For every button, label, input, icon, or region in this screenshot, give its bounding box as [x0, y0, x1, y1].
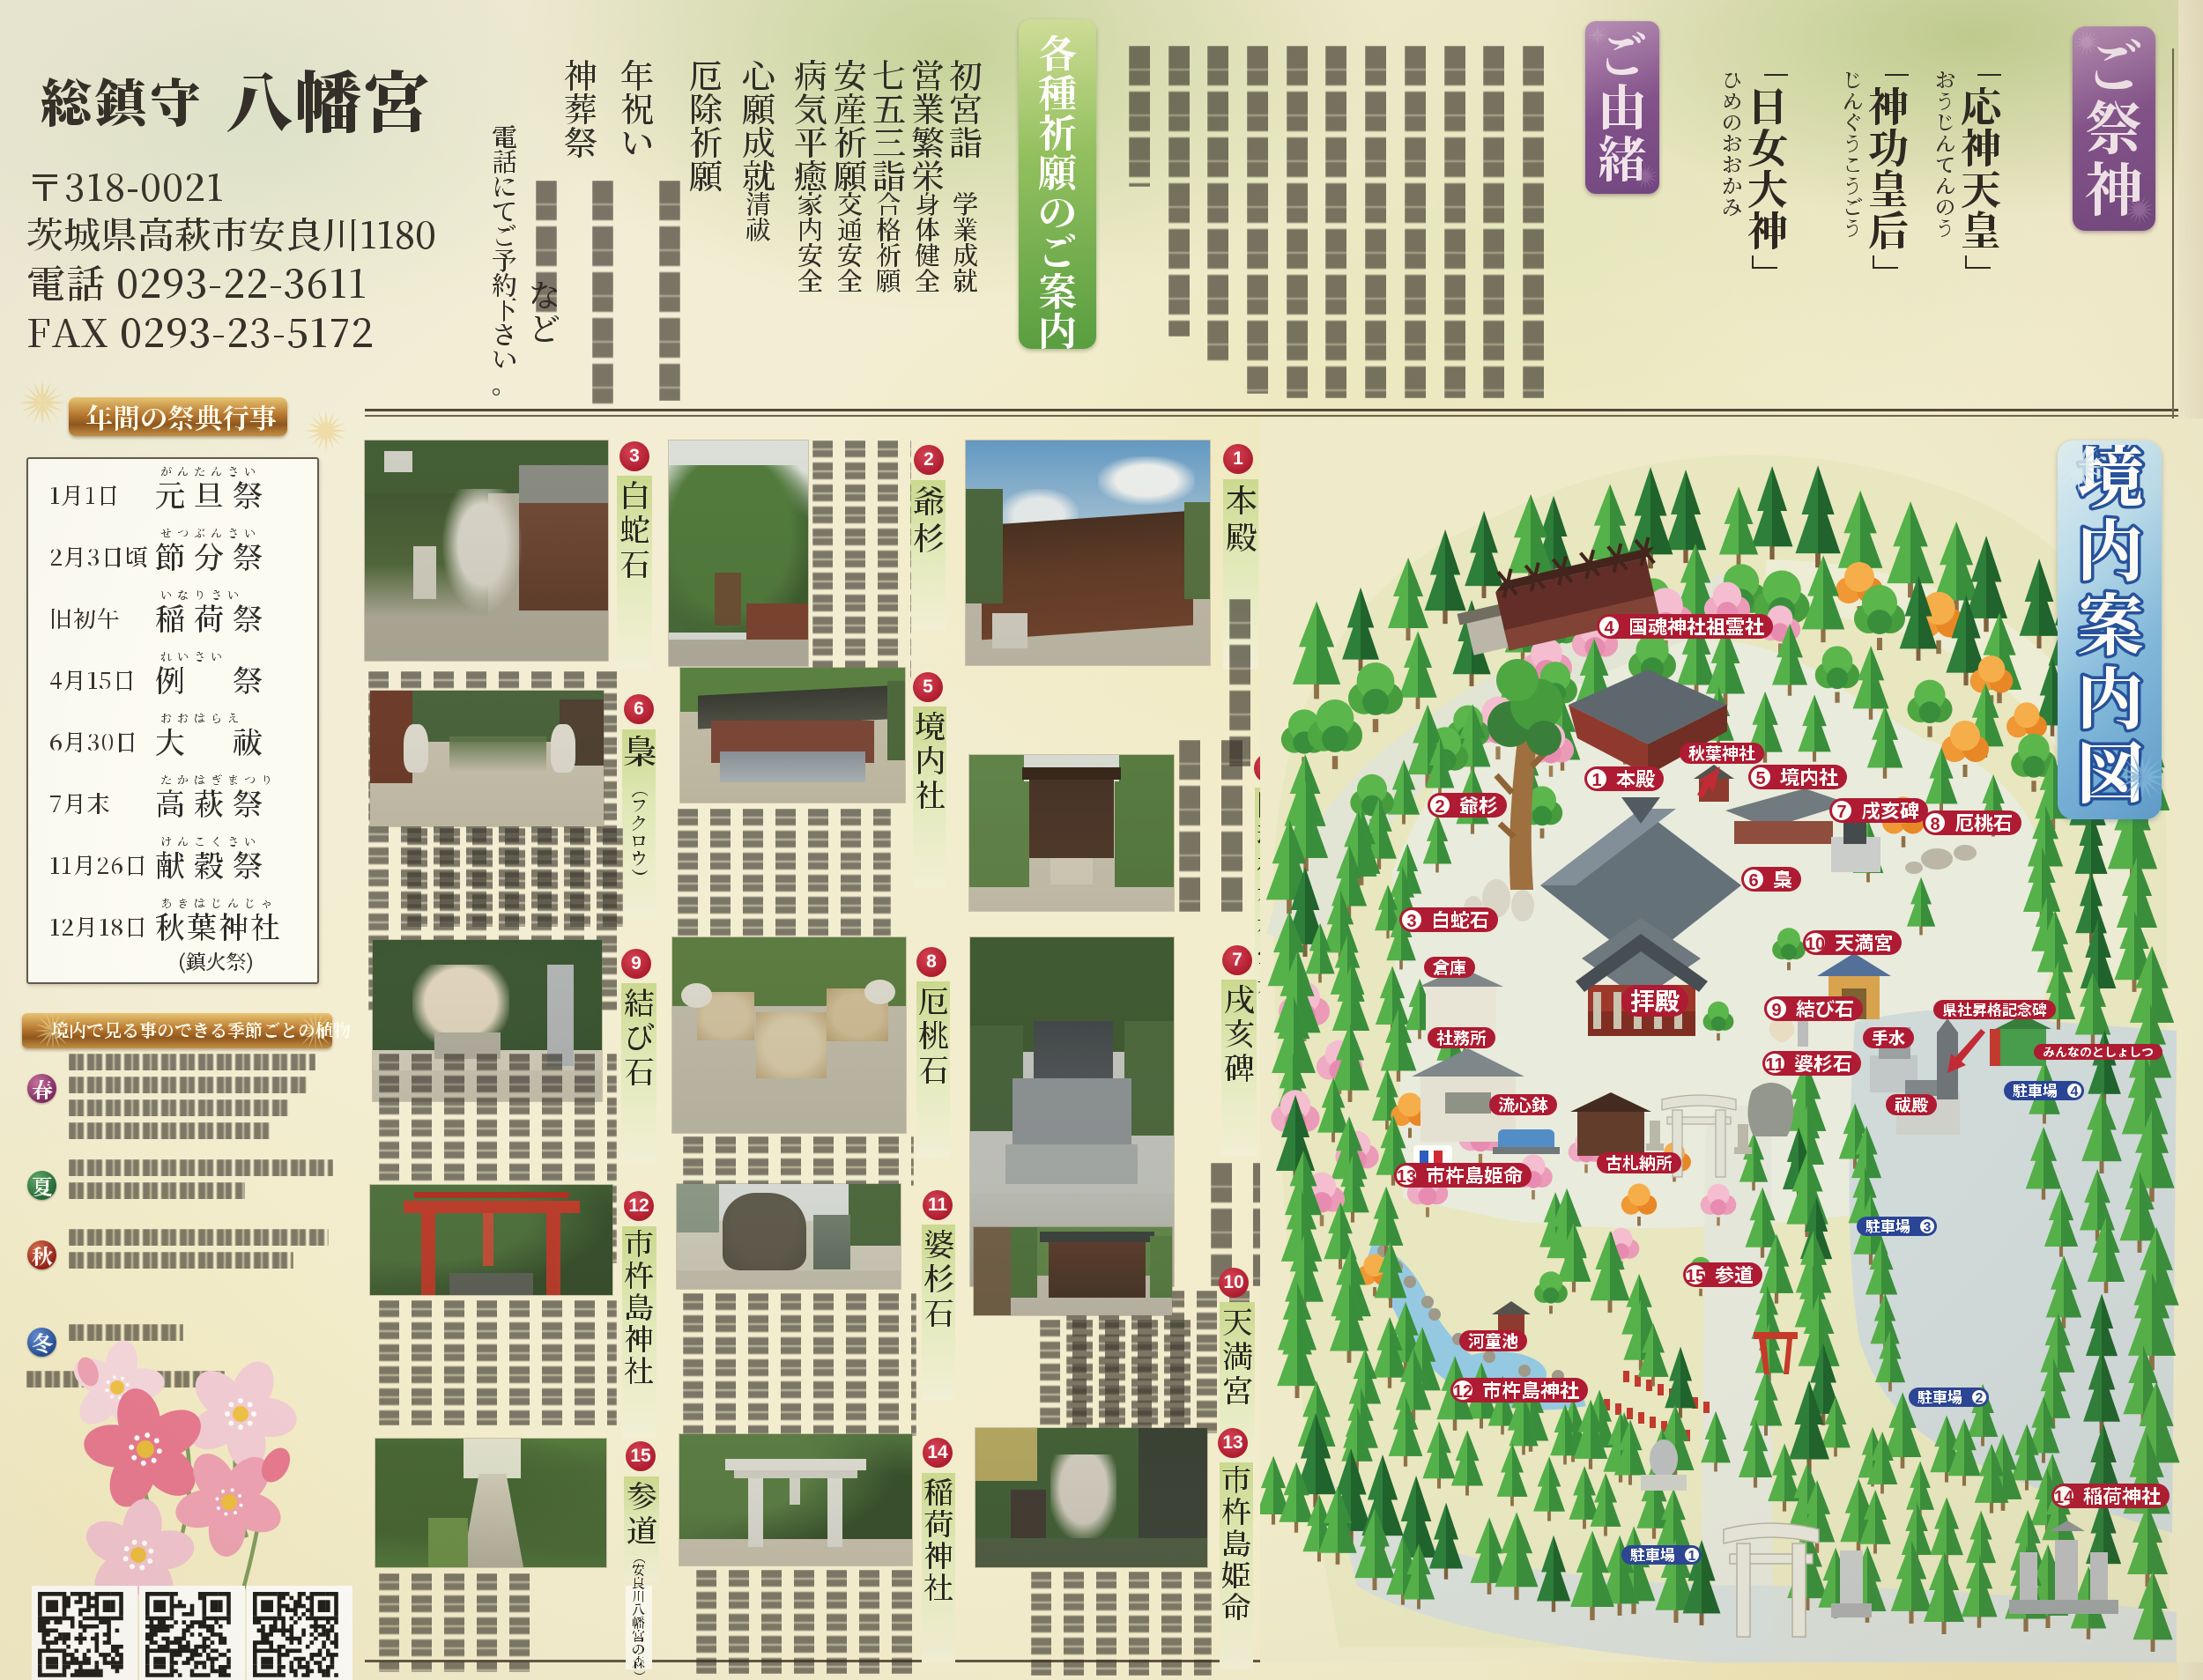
svg-text:1: 1	[1688, 1549, 1696, 1564]
svg-text:5: 5	[1755, 769, 1765, 788]
svg-text:15: 15	[1686, 1267, 1705, 1286]
svg-text:4: 4	[1604, 618, 1614, 638]
svg-text:8: 8	[1930, 815, 1940, 834]
svg-text:12: 12	[1453, 1382, 1472, 1402]
svg-text:13: 13	[1397, 1167, 1416, 1187]
svg-text:11: 11	[1765, 1055, 1784, 1075]
svg-text:14: 14	[2054, 1488, 2074, 1507]
svg-text:9: 9	[1771, 1001, 1781, 1020]
svg-text:2: 2	[1435, 797, 1444, 817]
svg-text:10: 10	[1806, 935, 1825, 954]
svg-text:3: 3	[1406, 912, 1416, 931]
svg-text:7: 7	[1836, 803, 1846, 822]
svg-text:4: 4	[2071, 1084, 2079, 1099]
svg-text:2: 2	[1976, 1391, 1984, 1406]
svg-text:6: 6	[1748, 871, 1758, 891]
svg-text:1: 1	[1591, 771, 1601, 790]
svg-text:3: 3	[1924, 1220, 1932, 1235]
